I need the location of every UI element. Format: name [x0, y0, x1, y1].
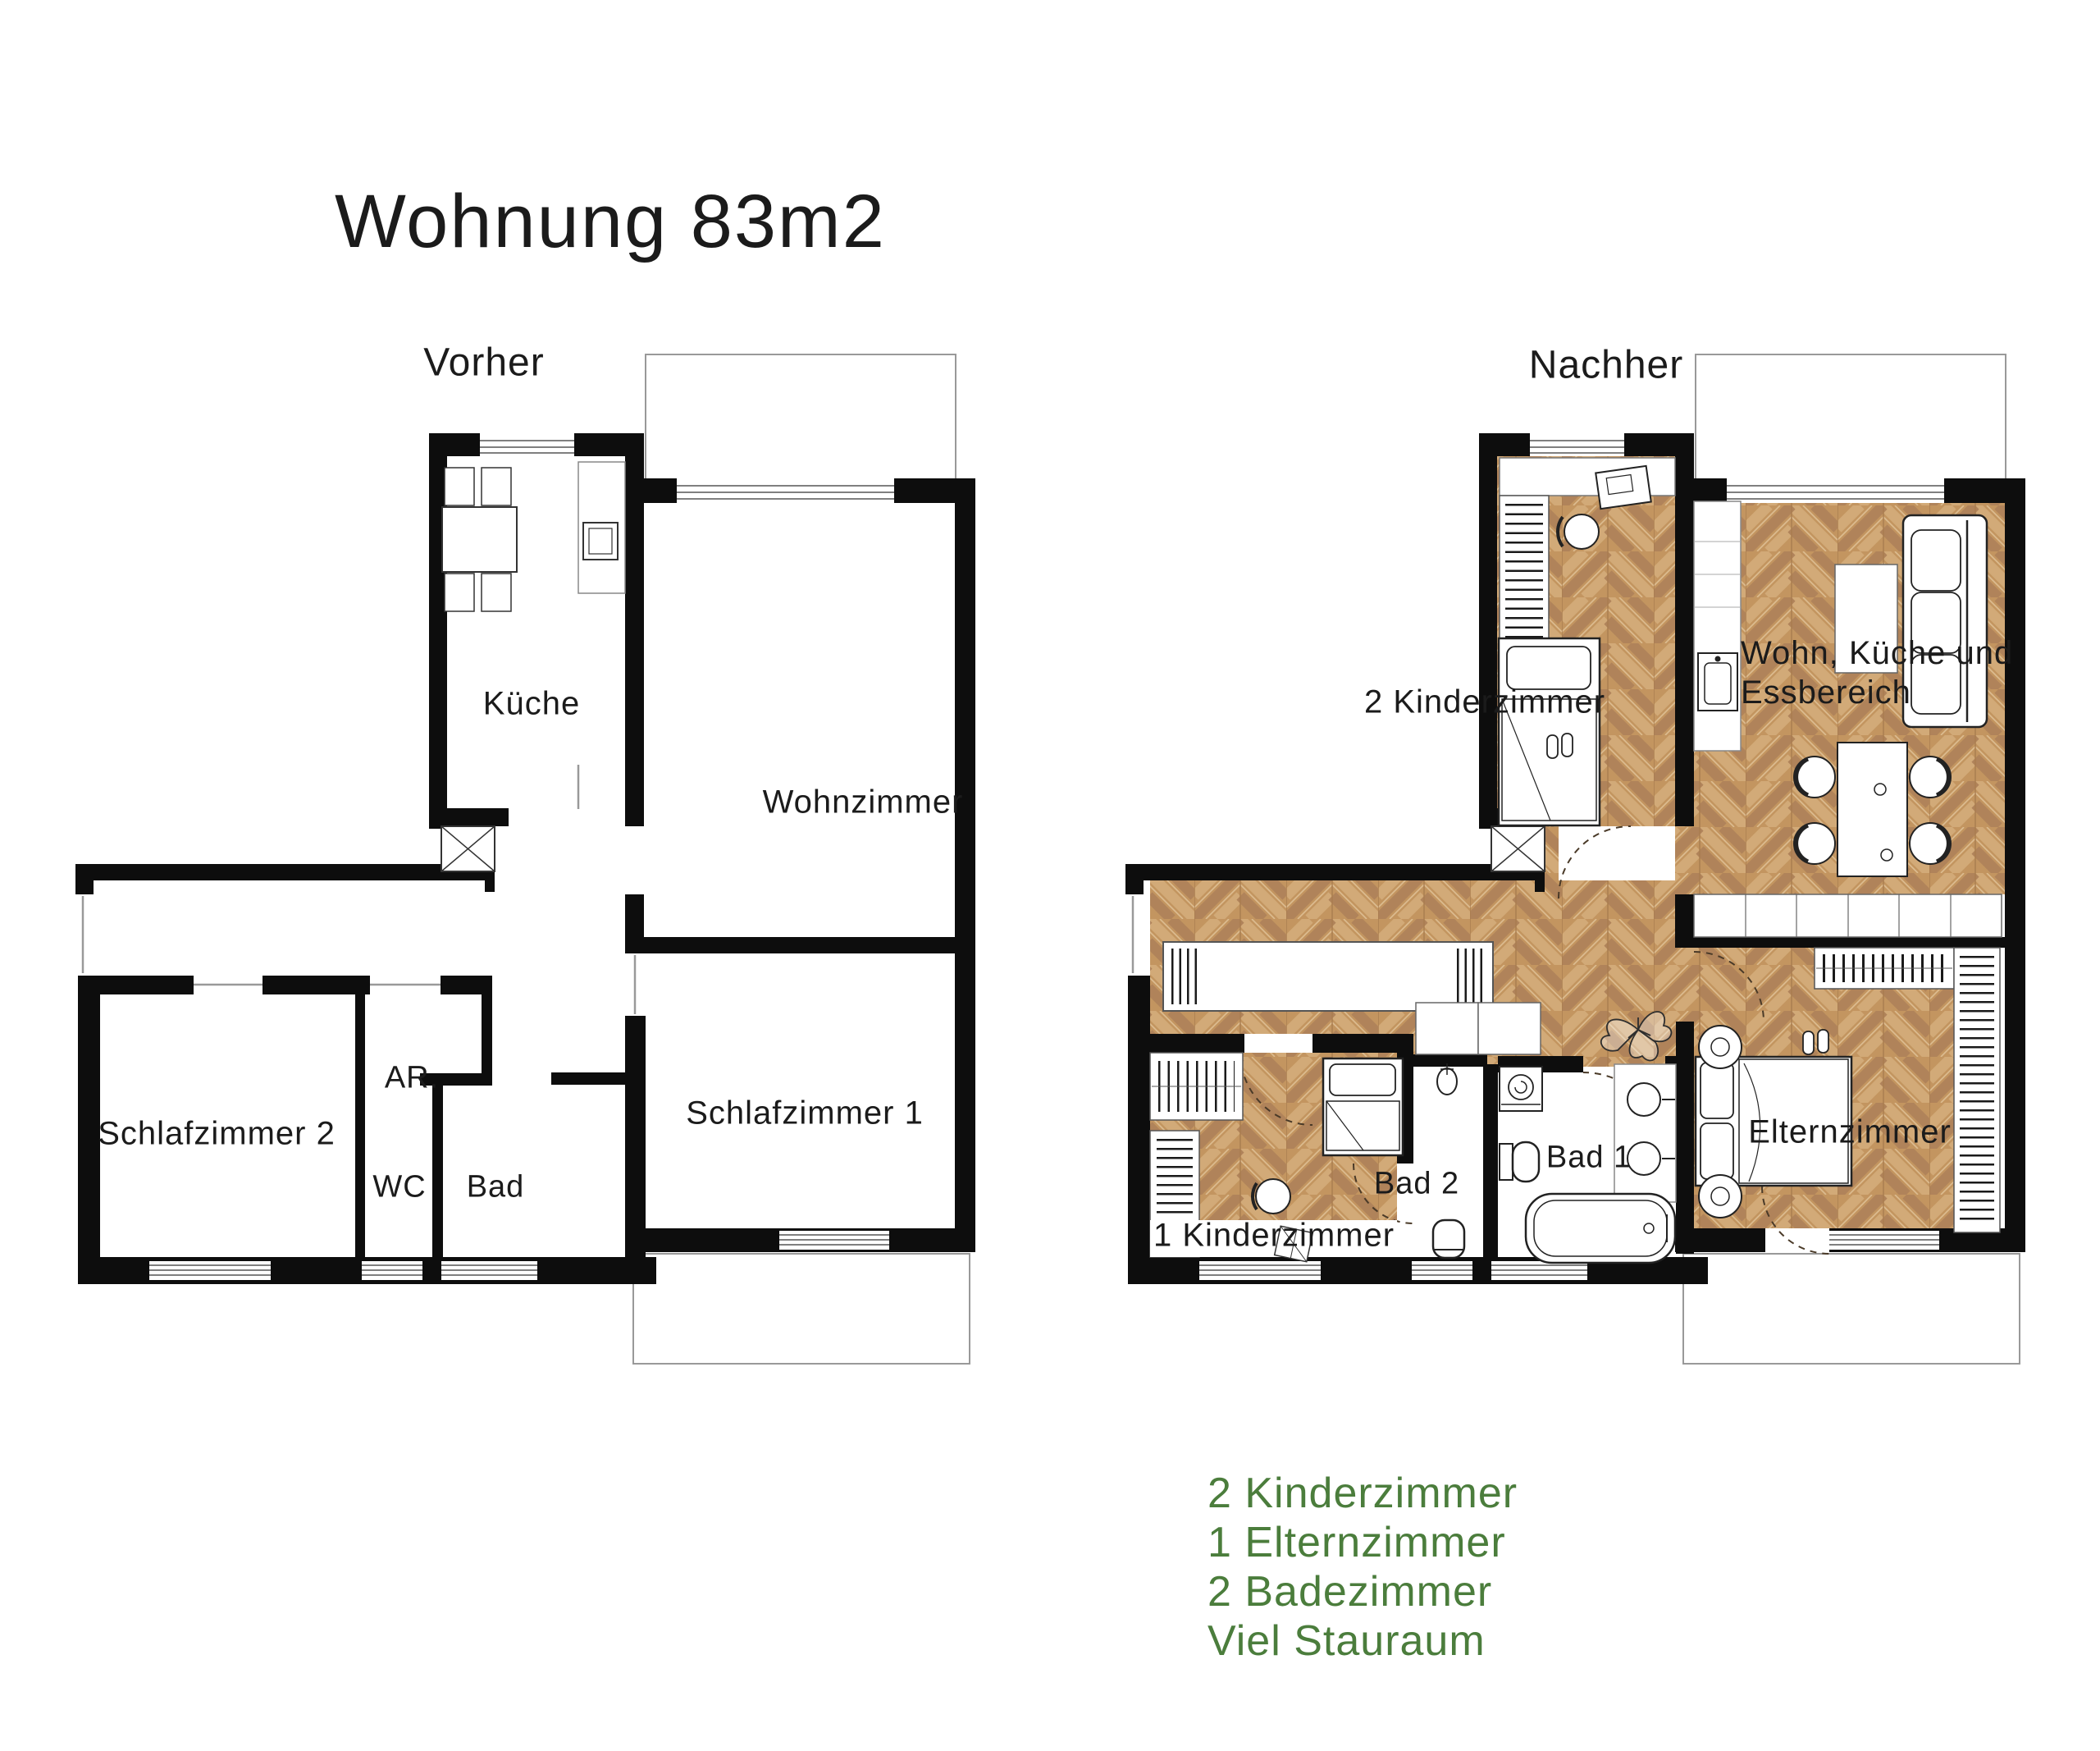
toilet-icon — [1433, 1220, 1464, 1258]
room-label-wohnbereich-line1: Wohn, Küche und — [1741, 633, 2013, 673]
feature-item: Viel Stauraum — [1207, 1616, 1518, 1666]
room-label-abstellraum: AR. — [385, 1061, 439, 1096]
toilet-icon — [1500, 1142, 1539, 1182]
washbasin-icon — [1437, 1063, 1457, 1095]
feature-item: 2 Kinderzimmer — [1207, 1469, 1518, 1518]
feature-item: 1 Elternzimmer — [1207, 1518, 1518, 1567]
parents-tall-closet-icon — [1954, 948, 2000, 1232]
shaft-icon — [1491, 826, 1545, 871]
room-label-bad1: Bad 1 — [1546, 1141, 1632, 1176]
floor-plan-drawing — [0, 0, 2100, 1751]
page-title: Wohnung 83m2 — [335, 179, 886, 265]
balcony-bottom — [633, 1254, 970, 1364]
windows — [149, 433, 894, 1280]
feature-item: 2 Badezimmer — [1207, 1567, 1518, 1616]
feature-list: 2 Kinderzimmer 1 Elternzimmer 2 Badezimm… — [1207, 1469, 1518, 1666]
desk-icon — [1596, 466, 1651, 509]
bath-cabinets-icon — [1416, 1003, 1541, 1054]
hall-wardrobe-icon — [1163, 942, 1493, 1011]
after-floor-plan — [1125, 354, 2025, 1364]
parents-hanging-closet-icon — [1815, 948, 1954, 989]
room-label-kueche: Küche — [483, 686, 580, 723]
kitchen-table-icon — [442, 468, 517, 611]
balcony-bottom — [1683, 1254, 2020, 1364]
shaft-icon — [441, 826, 495, 871]
bathtub-icon — [1526, 1194, 1675, 1263]
living-sideboard-icon — [1694, 894, 2002, 937]
room-label-elternzimmer: Elternzimmer — [1748, 1114, 1952, 1151]
double-washbasin-icon — [1614, 1064, 1676, 1202]
washing-machine-icon — [1500, 1067, 1542, 1111]
before-floor-plan — [75, 354, 975, 1364]
kitchen-counter-icon — [1694, 501, 1741, 751]
room-label-bad: Bad — [467, 1170, 525, 1205]
room-label-wc: WC — [372, 1170, 426, 1205]
after-plan-label: Nachher — [1529, 343, 1683, 388]
room-label-kinderzimmer2: 2 Kinderzimmer — [1364, 684, 1605, 721]
room-label-schlafzimmer2: Schlafzimmer 2 — [98, 1116, 336, 1153]
room-label-schlafzimmer1: Schlafzimmer 1 — [686, 1095, 924, 1132]
balcony-top — [646, 354, 956, 493]
room-label-wohnbereich: Wohn, Küche und Essbereich — [1741, 633, 2013, 712]
single-bed-icon — [1323, 1058, 1403, 1155]
room-label-bad2: Bad 2 — [1374, 1167, 1459, 1202]
kid1-top-closet-icon — [1150, 1053, 1243, 1120]
balcony-top — [1696, 354, 2006, 493]
room-label-kinderzimmer1: 1 Kinderzimmer — [1153, 1218, 1395, 1255]
kitchen-counter-icon — [578, 462, 625, 593]
room-label-wohnzimmer: Wohnzimmer — [763, 784, 964, 821]
before-plan-label: Vorher — [423, 341, 544, 386]
floor-plan-sheet: Wohnung 83m2 Vorher Nachher Küche Wohnzi… — [0, 0, 2100, 1751]
single-bed-icon — [1499, 638, 1600, 825]
room-label-wohnbereich-line2: Essbereich — [1741, 673, 2013, 712]
walls — [75, 433, 975, 1284]
